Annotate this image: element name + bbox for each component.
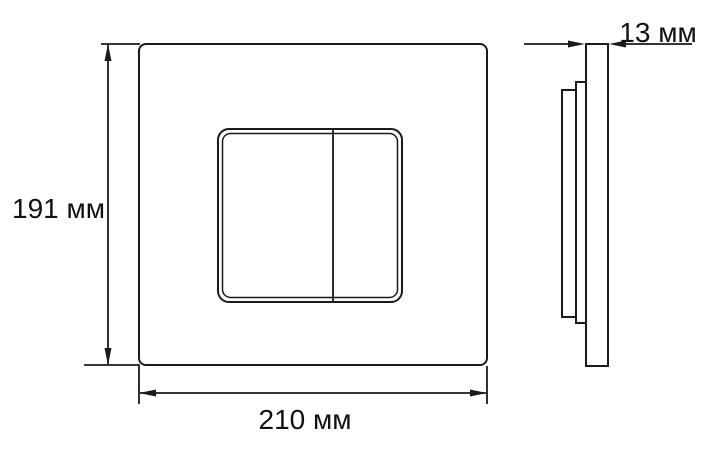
arrow-right-icon <box>470 390 487 397</box>
flush-plate-technical-drawing: 191 мм 210 мм 13 мм <box>0 0 720 452</box>
side-frame-middle <box>576 82 586 323</box>
arrow-right-icon <box>568 41 585 48</box>
side-view <box>562 44 608 366</box>
depth-dimension-label: 13 мм <box>619 17 696 48</box>
arrow-down-icon <box>105 348 112 365</box>
arrow-left-icon <box>139 390 156 397</box>
height-dimension: 191 мм <box>12 44 140 365</box>
flush-button-outer-outline <box>218 129 402 302</box>
side-plate-profile <box>586 44 608 366</box>
arrow-up-icon <box>105 44 112 61</box>
height-dimension-label: 191 мм <box>12 193 105 224</box>
width-dimension: 210 мм <box>139 366 487 435</box>
width-dimension-label: 210 мм <box>259 404 352 435</box>
front-view <box>139 44 487 365</box>
side-frame-back <box>562 90 576 317</box>
drawing-canvas: 191 мм 210 мм 13 мм <box>0 0 720 452</box>
depth-dimension: 13 мм <box>524 17 697 48</box>
